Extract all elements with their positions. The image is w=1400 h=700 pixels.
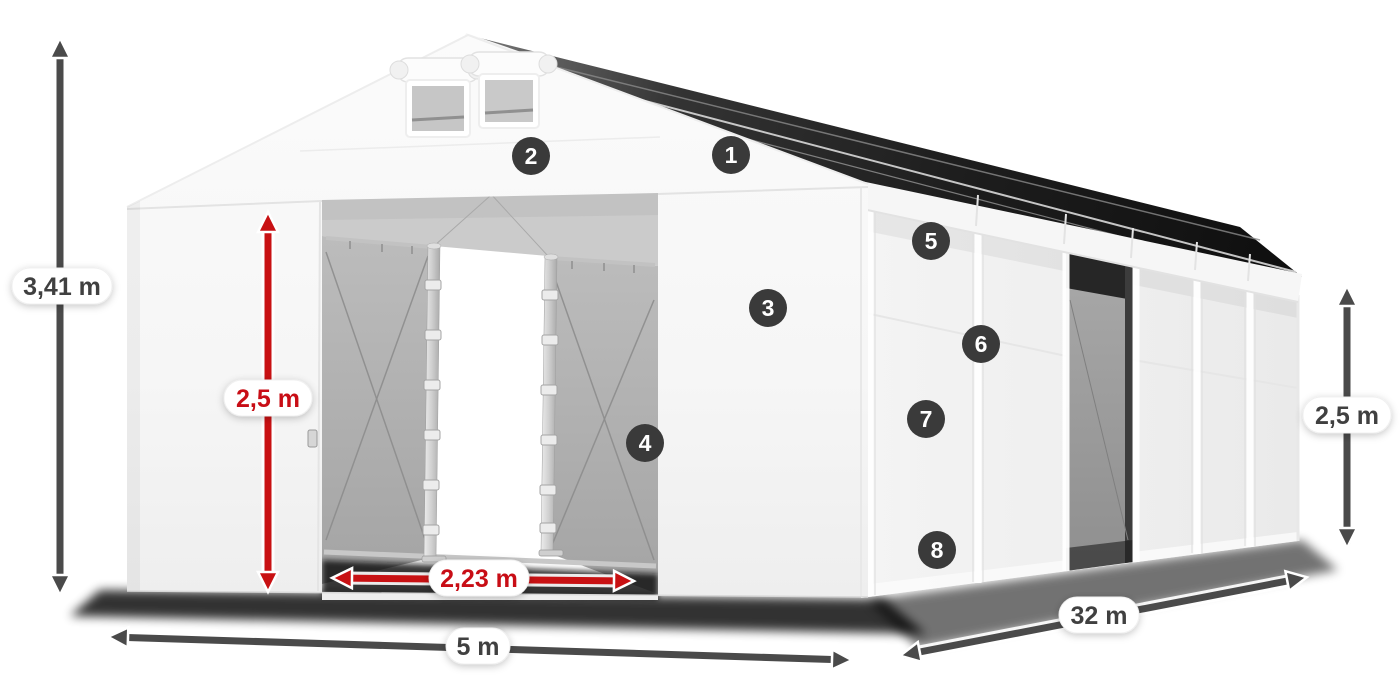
- dimension-pill: 2,5 m: [224, 380, 312, 416]
- tent-dimension-diagram: 3,41 m 2,5 m 2,23 m 5 m 32 m: [0, 0, 1400, 700]
- dimension-pill: 3,41 m: [12, 268, 112, 304]
- marker-number: 4: [639, 430, 652, 456]
- vent-mesh: [412, 86, 464, 131]
- marker-1[interactable]: 1: [712, 136, 750, 174]
- marker-2[interactable]: 2: [512, 137, 550, 175]
- diagram-canvas: 3,41 m 2,5 m 2,23 m 5 m 32 m: [0, 0, 1400, 700]
- dimension-pill: 2,5 m: [1303, 397, 1391, 433]
- dimension-total-height: 3,41 m: [12, 42, 112, 591]
- dimension-pill: 5 m: [446, 628, 510, 664]
- dimension-side-height: 2,5 m: [1303, 290, 1391, 544]
- vent-roll-cap: [539, 55, 557, 73]
- marker-number: 2: [525, 143, 538, 169]
- marker-number: 6: [975, 331, 988, 357]
- marker-6[interactable]: 6: [962, 325, 1000, 363]
- dimension-pill: 32 m: [1059, 597, 1139, 633]
- marker-number: 5: [925, 228, 938, 254]
- marker-8[interactable]: 8: [918, 531, 956, 569]
- vent-roll-cap: [461, 55, 479, 73]
- marker-5[interactable]: 5: [912, 222, 950, 260]
- door-handle[interactable]: [308, 430, 317, 447]
- dimension-label: 32 m: [1071, 602, 1128, 630]
- dimension-label: 2,23 m: [440, 565, 518, 593]
- dimension-pill: 2,23 m: [429, 560, 529, 596]
- vent-mesh: [485, 80, 533, 122]
- dimension-width: 5 m: [112, 628, 848, 664]
- side-door-opening: [1066, 252, 1136, 571]
- marker-3[interactable]: 3: [749, 289, 787, 327]
- marker-number: 8: [931, 537, 944, 563]
- marker-4[interactable]: 4: [626, 424, 664, 462]
- marker-number: 1: [725, 142, 738, 168]
- marker-number: 7: [920, 406, 933, 432]
- dimension-label: 2,5 m: [236, 385, 300, 413]
- dimension-label: 5 m: [456, 633, 499, 661]
- dimension-label: 3,41 m: [23, 273, 101, 301]
- door-interior: [322, 191, 658, 600]
- vent-roll: [468, 52, 550, 76]
- dimension-label: 2,5 m: [1315, 402, 1379, 430]
- marker-number: 3: [762, 295, 775, 321]
- left-edge-shade: [127, 201, 140, 592]
- vent-roll-cap: [390, 61, 408, 79]
- marker-7[interactable]: 7: [907, 400, 945, 438]
